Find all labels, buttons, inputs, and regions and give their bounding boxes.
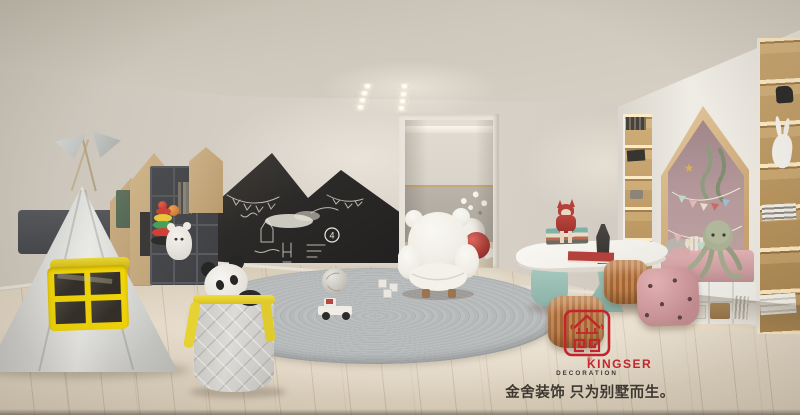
- figurine-leg: [568, 231, 572, 243]
- plush-face: [173, 236, 185, 244]
- leaf-garland: [702, 148, 724, 202]
- chalk-doodles: 4: [211, 143, 407, 263]
- toy-block: [378, 279, 387, 288]
- dark-figurine: [775, 85, 793, 103]
- toy-car-roof: [326, 299, 333, 304]
- playroom-render: 4 ★: [0, 0, 800, 415]
- recessed-spotlight: [355, 105, 366, 110]
- recessed-spotlight: [359, 91, 370, 96]
- recessed-spotlight: [397, 99, 408, 104]
- shelf-books: [626, 117, 646, 130]
- window-pane: [91, 300, 122, 323]
- recessed-spotlight: [362, 84, 373, 89]
- recessed-spotlight: [399, 84, 410, 89]
- photo-bottom-edge: [0, 409, 800, 415]
- window-pane: [55, 301, 86, 324]
- recessed-spotlight: [357, 98, 368, 103]
- toy-car-wheel: [342, 312, 350, 320]
- toy-car-wheel: [322, 312, 330, 320]
- red-book: [568, 251, 614, 262]
- toy-block: [383, 289, 392, 298]
- registered-mark: ®: [587, 357, 591, 363]
- shelf-books: [762, 203, 797, 221]
- figurine-leg: [560, 231, 564, 243]
- ceiling-glow: [320, 60, 500, 115]
- chalk-number: 4: [329, 231, 334, 241]
- bear-armchair: [398, 204, 482, 304]
- shelf-object-dark: [627, 149, 646, 161]
- fox-girl-figurine: [552, 202, 580, 244]
- recessed-spotlight: [396, 106, 407, 111]
- brand-text: KINGSER: [587, 357, 652, 371]
- kingser-logo-emblem: [562, 308, 612, 358]
- watermark-tagline: 金舍装饰 只为别墅而生。: [495, 381, 685, 402]
- toy-car: [316, 296, 354, 320]
- figurine-body: [556, 215, 576, 233]
- pink-dot-pouf: [636, 267, 700, 327]
- recessed-spotlight: [398, 92, 409, 97]
- shelf-vase: [630, 190, 643, 199]
- octopus-plush: [690, 220, 740, 277]
- tent-yellow-window: [47, 265, 129, 332]
- watermark-division: DECORATION: [552, 370, 622, 377]
- lit-bookshelf-column-right: [757, 38, 800, 334]
- knitted-ball-toy: [322, 268, 348, 294]
